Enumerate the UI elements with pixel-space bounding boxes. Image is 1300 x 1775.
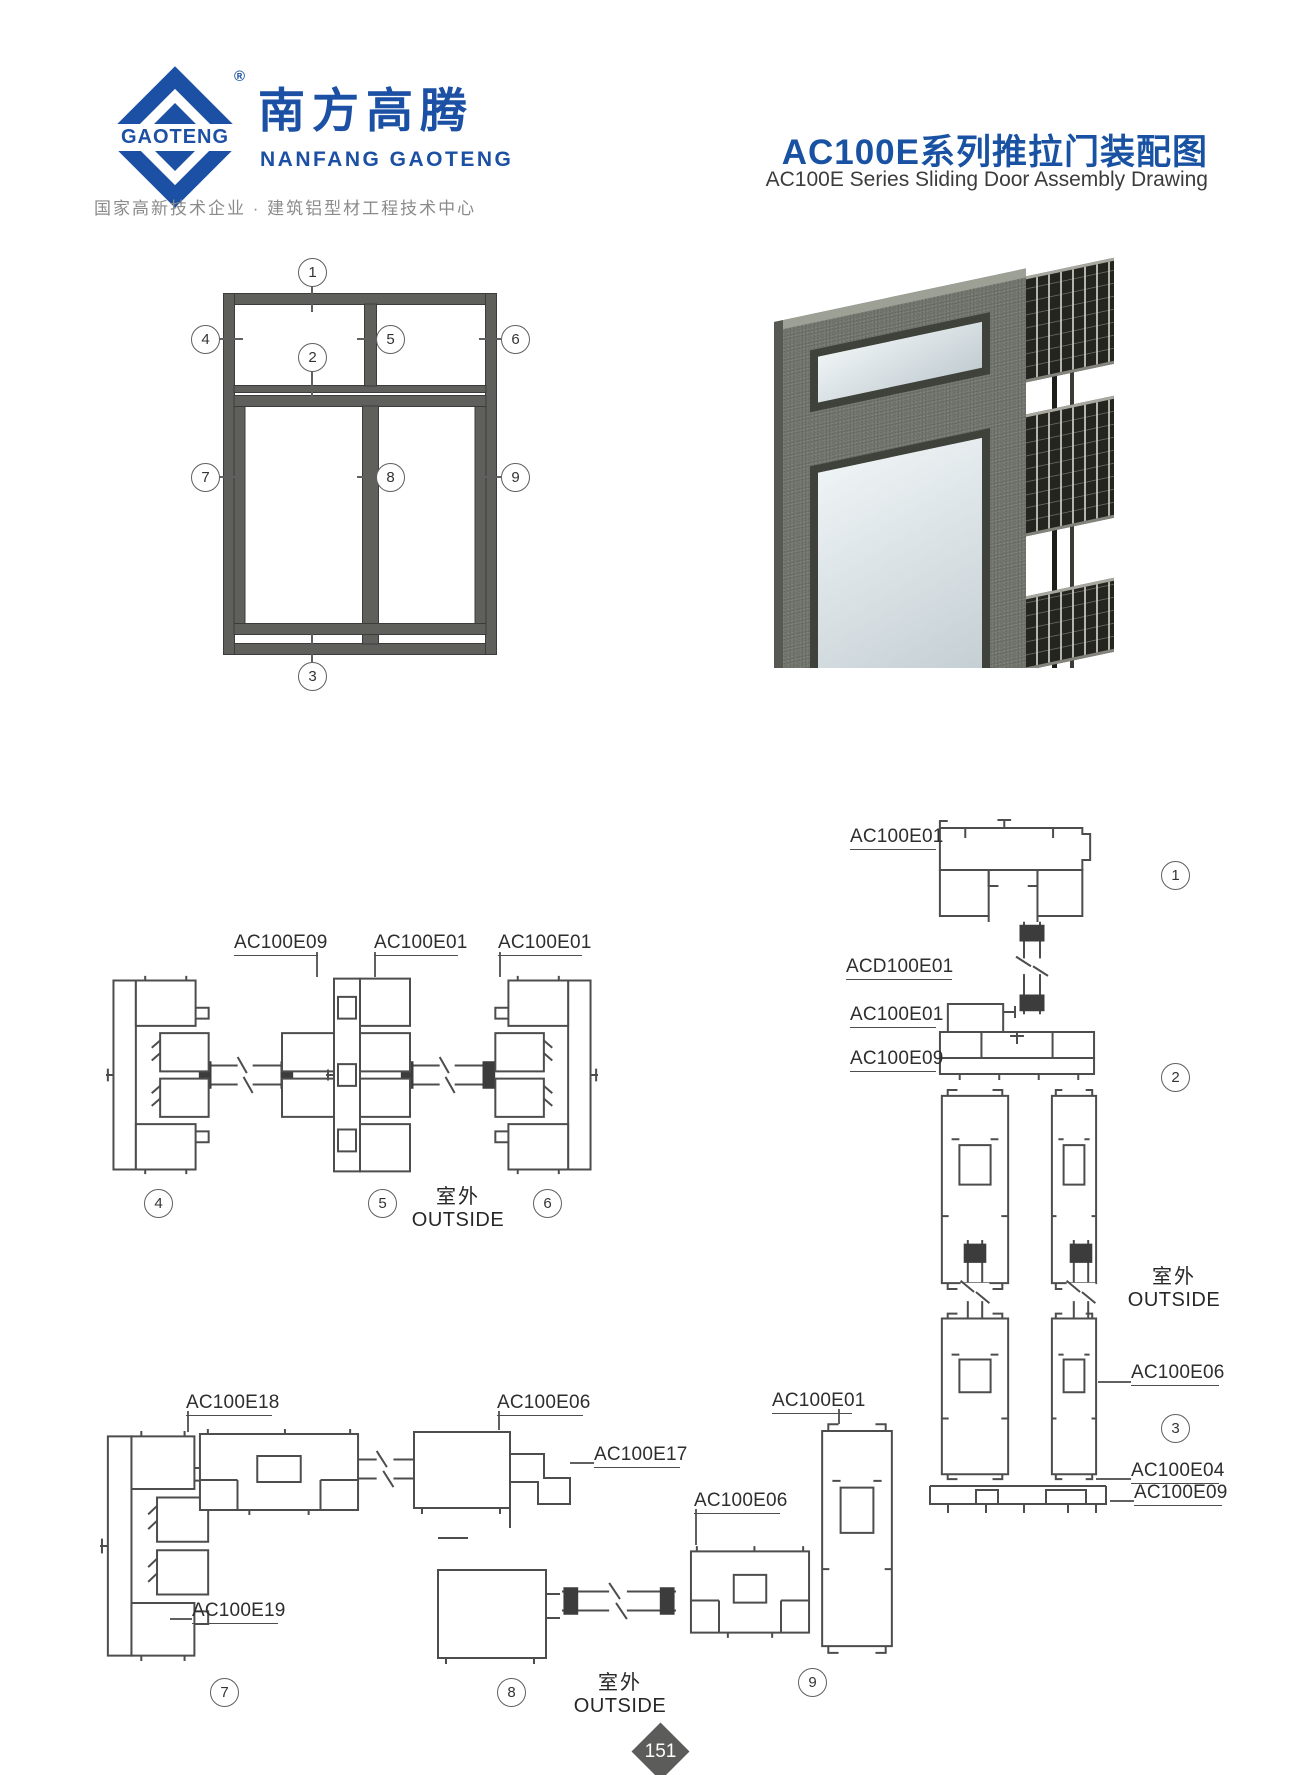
callout-9-num: 9 [511,469,519,486]
profile-label-ac100e09: AC100E09 [850,1048,936,1072]
company-name-en: NANFANG GAOTENG [260,148,513,172]
page-number: 151 [640,1731,681,1772]
callout-num: 8 [507,1684,515,1701]
leader-line [357,338,376,340]
glass-unit-drawing [398,1056,498,1094]
logo-band: GAOTENG [100,124,250,151]
leader-line [219,338,243,340]
outside-label-en: OUTSIDE [408,1209,508,1232]
logo-text: GAOTENG [121,126,229,149]
door-3d-render [732,226,1124,668]
callout-5: 5 [376,325,405,354]
callout-4-num: 4 [201,331,209,348]
registered-mark: ® [234,68,245,85]
callout-8-section: 8 [497,1678,526,1707]
callout-num: 3 [1171,1420,1179,1437]
outside-label-cn: 室外 [408,1180,508,1209]
callout-2-section: 2 [1161,1063,1190,1092]
leader-line [170,1618,192,1620]
leader-line [1096,1478,1131,1480]
company-logo: GAOTENG ® [108,70,242,204]
profile-label-ac100e17: AC100E17 [594,1444,680,1468]
callout-6: 6 [501,325,530,354]
callout-8-num: 8 [386,469,394,486]
profile-drawing-mullion-5 [280,975,412,1175]
callout-num: 1 [1171,867,1179,884]
outside-marker: 室外 OUTSIDE [570,1666,670,1718]
callout-4: 4 [191,325,220,354]
render-glass-edge [1052,520,1057,595]
catalog-page: GAOTENG ® 南方高腾 NANFANG GAOTENG 国家高新技术企业 … [0,0,1300,1775]
profile-label-ac100e19: AC100E19 [192,1600,278,1624]
leader-line [479,338,501,340]
callout-9-section: 9 [798,1668,827,1697]
render-left-bevel [774,320,783,668]
leader-line [1098,1381,1131,1383]
company-tagline: 国家高新技术企业 · 建筑铝型材工程技术中心 [94,194,476,219]
leader-line [1110,1500,1134,1502]
profile-drawing-sash-stile [688,1545,812,1639]
profile-label-ac100e01: AC100E01 [498,932,582,956]
company-name-cn: 南方高腾 [258,72,474,141]
callout-5-section: 5 [368,1189,397,1218]
leader-line [695,1509,697,1545]
profile-label-ac100e09: AC100E09 [1134,1482,1222,1506]
callout-6-section: 6 [533,1189,562,1218]
callout-8: 8 [376,463,405,492]
leader-line [311,371,313,400]
profile-drawing-sash-rail [1048,1312,1100,1480]
callout-7-section: 7 [210,1678,239,1707]
callout-num: 9 [808,1674,816,1691]
callout-3-section: 3 [1161,1414,1190,1443]
profile-label-ac100e06: AC100E06 [694,1490,780,1514]
callout-1-section: 1 [1161,861,1190,890]
render-door-glass [810,428,990,668]
render-cut-profile-head [1026,258,1114,383]
leader-line [311,286,313,312]
callout-1: 1 [298,258,327,287]
profile-drawing-frame-jamb-9 [816,1422,898,1654]
profile-drawing-frame-jamb-4 [106,975,218,1175]
profile-label-ac100e06: AC100E06 [497,1392,583,1416]
outside-label-en: OUTSIDE [570,1695,670,1718]
render-cut-profile-transom [1026,396,1114,537]
callout-3-num: 3 [308,668,316,685]
callout-num: 6 [543,1195,551,1212]
profile-drawing-sash-rail [936,1312,1014,1480]
callout-3: 3 [298,662,327,691]
outside-marker: 室外 OUTSIDE [1122,1260,1226,1312]
callout-num: 5 [378,1195,386,1212]
leader-line [357,476,376,478]
profile-drawing-interlock-8 [410,1428,586,1664]
leader-line [311,633,313,662]
profile-label-ac100e01: AC100E01 [374,932,458,956]
callout-2-num: 2 [308,349,316,366]
callout-num: 2 [1171,1069,1179,1086]
render-skew-group [774,249,1119,668]
callout-7-num: 7 [201,469,209,486]
outside-label-en: OUTSIDE [1122,1289,1226,1312]
profile-label-ac100e01: AC100E01 [772,1390,852,1414]
leader-line [570,1462,594,1464]
callout-num: 4 [154,1195,162,1212]
callout-7: 7 [191,463,220,492]
callout-6-num: 6 [511,331,519,348]
profile-label-ac100e09: AC100E09 [234,932,318,956]
leader-line [219,476,243,478]
profile-drawing-frame-jamb-6 [486,975,598,1175]
profile-drawing-sash-stile [196,1428,362,1516]
profile-label-acd100e01: ACD100E01 [846,956,952,980]
callout-1-num: 1 [308,264,316,281]
callout-5-num: 5 [386,331,394,348]
outside-label-cn: 室外 [570,1666,670,1695]
outside-marker: 室外 OUTSIDE [408,1180,508,1232]
profile-drawing-head-1 [936,818,1096,922]
callout-4-section: 4 [144,1189,173,1218]
page-subtitle: AC100E Series Sliding Door Assembly Draw… [766,168,1208,192]
profile-label-ac100e18: AC100E18 [186,1392,272,1416]
profile-drawing-bottom-track-3 [928,1480,1108,1516]
profile-label-ac100e01: AC100E01 [850,1004,936,1028]
callout-9: 9 [501,463,530,492]
render-glass-edge [1070,516,1074,591]
render-cut-profile-rail [1026,578,1114,668]
door-elevation-diagram [223,293,497,655]
profile-label-ac100e04: AC100E04 [1131,1460,1219,1484]
leader-line [479,476,501,478]
profile-drawing-interlock-2 [936,1000,1098,1084]
outside-label-cn: 室外 [1122,1260,1226,1289]
profile-label-ac100e06: AC100E06 [1131,1362,1219,1386]
callout-num: 7 [220,1684,228,1701]
callout-2: 2 [298,343,327,372]
profile-label-ac100e01: AC100E01 [850,826,936,850]
